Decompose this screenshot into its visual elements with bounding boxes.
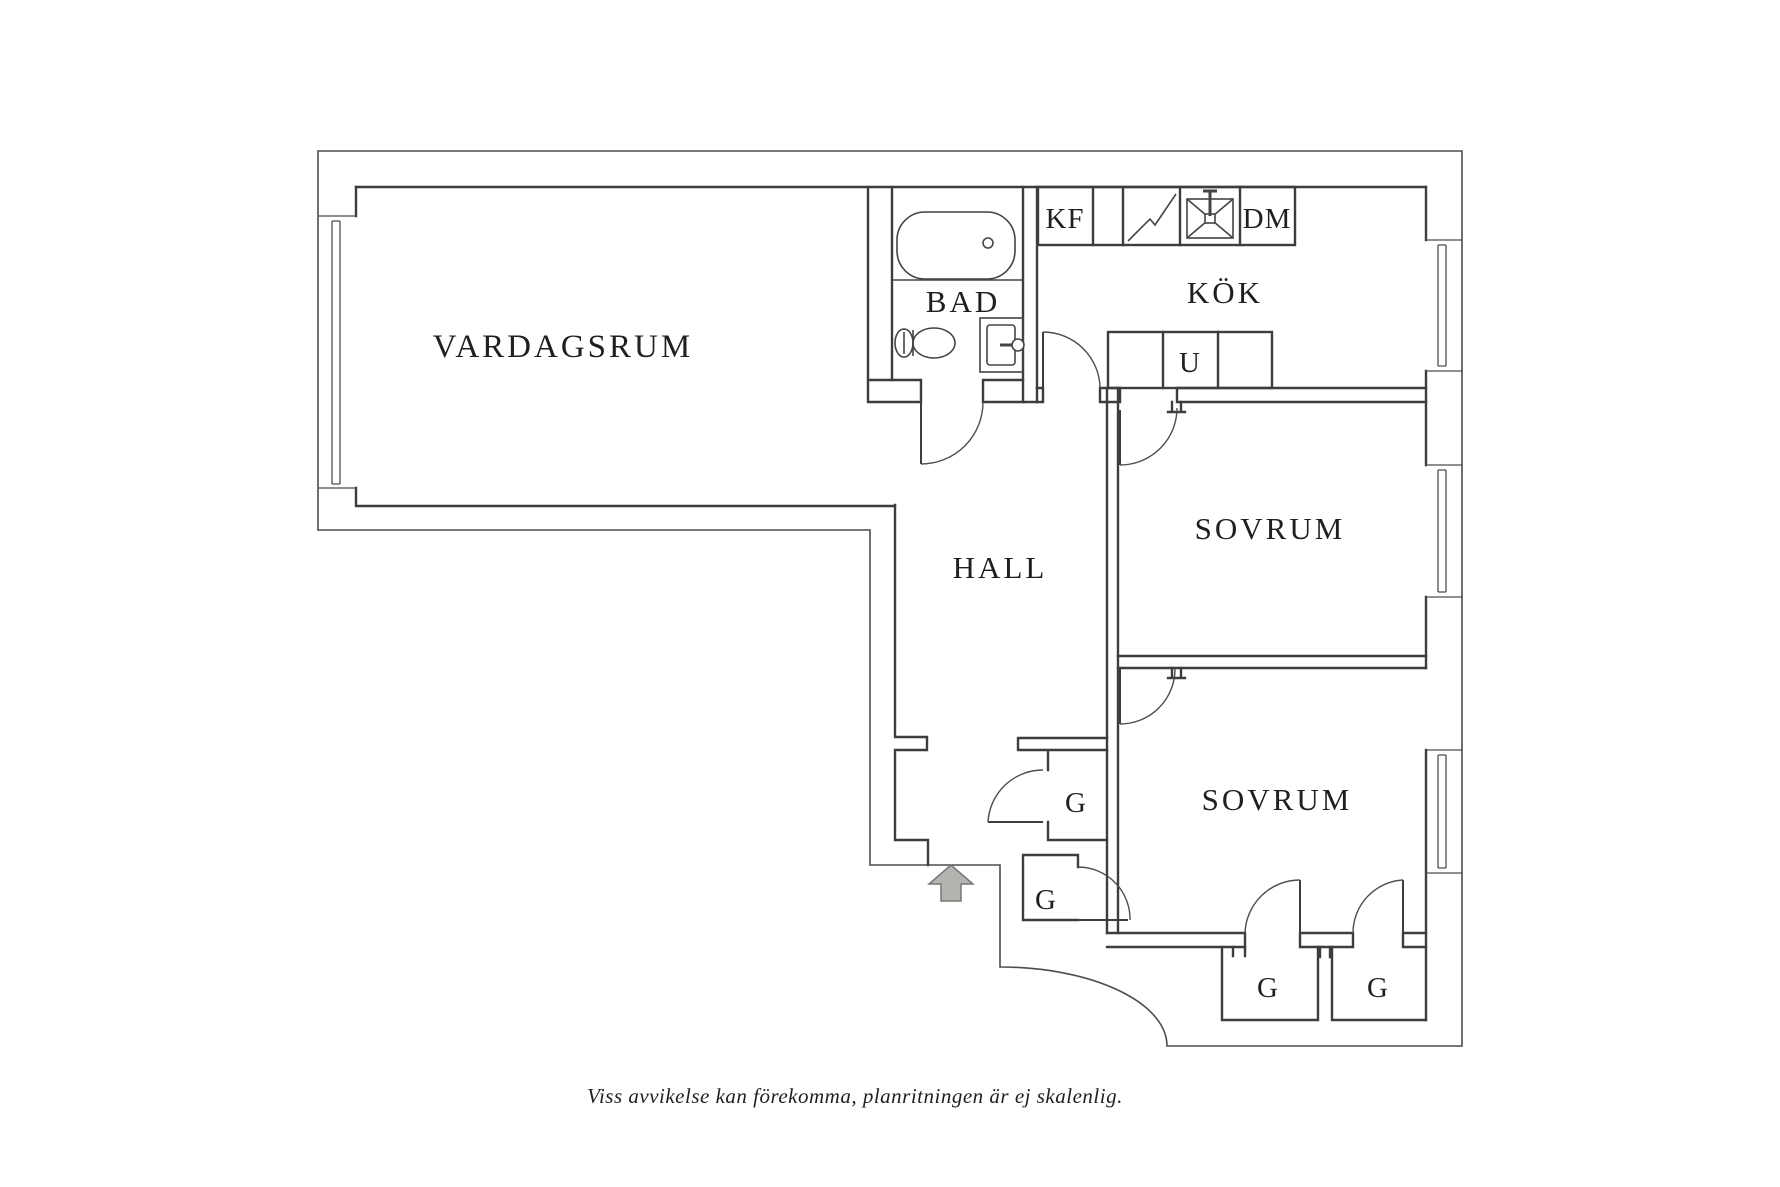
- unit-label-cabinet-u: U: [1179, 347, 1201, 379]
- room-label-bedroom-1: SOVRUM: [1195, 511, 1346, 546]
- closet-label: G: [1367, 972, 1389, 1004]
- room-label-living-room: VARDAGSRUM: [433, 329, 693, 365]
- door-swing-icon: [1078, 867, 1130, 920]
- door-swing-icon: [1120, 408, 1177, 465]
- disclaimer-caption: Viss avvikelse kan förekomma, planritnin…: [587, 1084, 1123, 1108]
- door-swing-icon: [1043, 332, 1100, 388]
- building-envelope-outline: [318, 151, 1462, 1046]
- room-label-hall: HALL: [953, 550, 1048, 585]
- window-icon: [318, 216, 356, 488]
- window-icon: [1426, 465, 1462, 597]
- door-swing-icon: [988, 770, 1043, 822]
- room-label-bedroom-2: SOVRUM: [1202, 782, 1353, 817]
- entrance-arrow-icon: [929, 865, 973, 901]
- room-label-bathroom: BAD: [926, 284, 1000, 319]
- floorplan-page: VARDAGSRUM BAD KÖK HALL SOVRUM SOVRUM KF…: [0, 0, 1780, 1187]
- floorplan-drawing: VARDAGSRUM BAD KÖK HALL SOVRUM SOVRUM KF…: [0, 0, 1780, 1187]
- unit-label-dishwasher: DM: [1243, 203, 1292, 235]
- sink-icon: [980, 318, 1024, 372]
- interior-walls: [356, 187, 1426, 1020]
- kitchen-sink-icon: [1187, 191, 1233, 238]
- closet-label: G: [1257, 972, 1279, 1004]
- door-swing-icon: [1120, 669, 1175, 724]
- door-swing-icon: [921, 402, 983, 464]
- bathtub-icon: [892, 212, 1023, 280]
- unit-label-fridge-freezer: KF: [1045, 203, 1084, 235]
- door-swing-icon: [1245, 880, 1300, 933]
- closet-label: G: [1035, 884, 1057, 916]
- doors: [921, 332, 1403, 933]
- toilet-icon: [895, 328, 955, 358]
- window-icon: [1426, 240, 1462, 371]
- room-label-kitchen: KÖK: [1187, 275, 1263, 310]
- door-swing-icon: [1353, 880, 1403, 933]
- window-icon: [1426, 750, 1462, 873]
- stove-icon: [1128, 194, 1176, 241]
- closet-label: G: [1065, 787, 1087, 819]
